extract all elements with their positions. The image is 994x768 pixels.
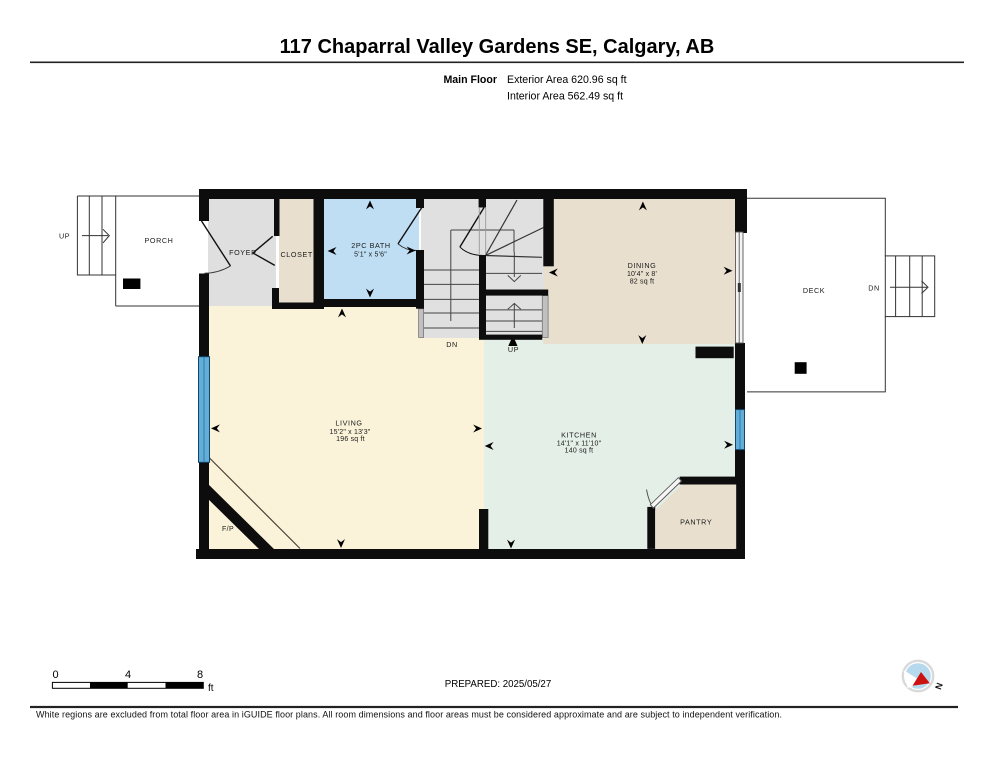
svg-text:Interior Area 562.49 sq ft: Interior Area 562.49 sq ft xyxy=(507,91,623,103)
svg-text:DECK: DECK xyxy=(803,286,825,295)
svg-text:PORCH: PORCH xyxy=(145,236,174,245)
svg-text:White regions are excluded fro: White regions are excluded from total fl… xyxy=(36,710,782,720)
svg-text:KITCHEN: KITCHEN xyxy=(561,430,597,439)
svg-text:PREPARED: 2025/05/27: PREPARED: 2025/05/27 xyxy=(445,679,551,690)
svg-text:196 sq ft: 196 sq ft xyxy=(336,436,365,443)
svg-text:F/P: F/P xyxy=(222,526,234,533)
svg-text:140 sq ft: 140 sq ft xyxy=(565,448,594,455)
svg-text:8: 8 xyxy=(197,669,203,681)
svg-text:10'4" x 8': 10'4" x 8' xyxy=(627,271,657,278)
svg-text:PANTRY: PANTRY xyxy=(680,518,712,527)
svg-text:DN: DN xyxy=(446,340,458,349)
svg-text:DN: DN xyxy=(868,284,880,293)
svg-text:2PC BATH: 2PC BATH xyxy=(351,241,390,250)
svg-text:0: 0 xyxy=(53,669,59,681)
svg-text:ft: ft xyxy=(208,683,214,694)
svg-text:UP: UP xyxy=(508,345,519,354)
svg-text:Exterior Area 620.96 sq ft: Exterior Area 620.96 sq ft xyxy=(507,74,627,86)
svg-text:CLOSET: CLOSET xyxy=(281,250,313,259)
svg-text:117 Chaparral Valley Gardens S: 117 Chaparral Valley Gardens SE, Calgary… xyxy=(280,36,715,58)
svg-text:82 sq ft: 82 sq ft xyxy=(630,279,655,286)
svg-text:4: 4 xyxy=(125,669,131,681)
svg-text:Main Floor: Main Floor xyxy=(443,74,497,86)
svg-text:UP: UP xyxy=(59,232,70,241)
svg-text:5'1" x 5'6": 5'1" x 5'6" xyxy=(354,251,387,258)
svg-text:LIVING: LIVING xyxy=(335,418,362,427)
svg-text:FOYER: FOYER xyxy=(229,248,257,257)
svg-text:14'1" x 11'10": 14'1" x 11'10" xyxy=(557,440,602,447)
svg-text:DINING: DINING xyxy=(628,261,657,270)
svg-text:15'2" x 13'3": 15'2" x 13'3" xyxy=(330,429,371,436)
